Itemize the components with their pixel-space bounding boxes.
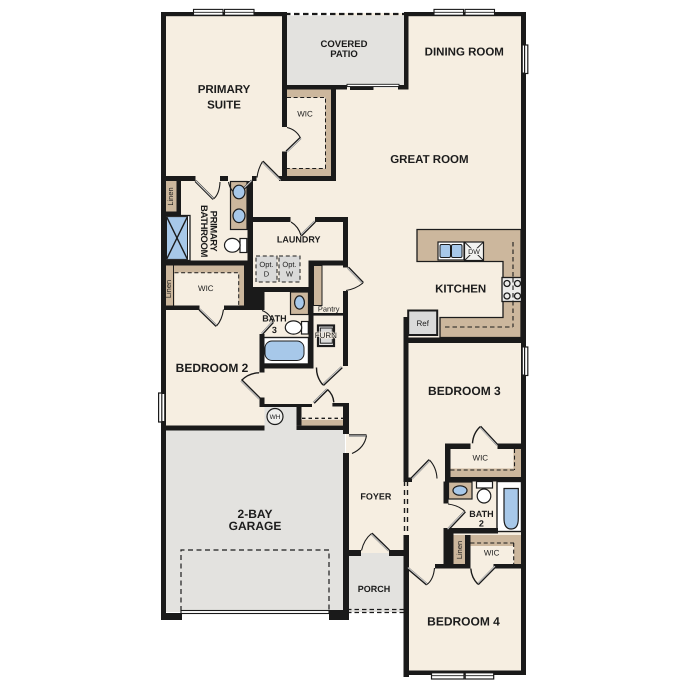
svg-text:SUITE: SUITE bbox=[207, 99, 241, 111]
svg-text:PRIMARY: PRIMARY bbox=[198, 84, 251, 96]
svg-text:KITCHEN: KITCHEN bbox=[435, 284, 486, 296]
svg-text:Ref: Ref bbox=[416, 319, 429, 328]
svg-text:GARAGE: GARAGE bbox=[229, 519, 282, 533]
svg-text:WIC: WIC bbox=[484, 549, 500, 558]
svg-text:Opt.: Opt. bbox=[259, 260, 273, 269]
svg-text:BATH: BATH bbox=[262, 314, 286, 324]
svg-text:BATHROOM: BATHROOM bbox=[198, 205, 209, 258]
svg-text:DINING ROOM: DINING ROOM bbox=[425, 46, 504, 58]
svg-text:DW: DW bbox=[468, 249, 480, 256]
svg-text:PORCH: PORCH bbox=[358, 584, 391, 594]
svg-text:BEDROOM 4: BEDROOM 4 bbox=[427, 614, 500, 628]
svg-text:Opt.: Opt. bbox=[282, 260, 296, 269]
svg-text:2: 2 bbox=[479, 519, 484, 529]
svg-text:PATIO: PATIO bbox=[330, 49, 358, 60]
svg-text:Linen: Linen bbox=[166, 187, 175, 205]
svg-text:WIC: WIC bbox=[198, 284, 214, 293]
svg-text:BATH: BATH bbox=[469, 509, 493, 519]
svg-text:Linen: Linen bbox=[164, 280, 173, 298]
svg-text:D: D bbox=[264, 270, 270, 279]
svg-text:WIC: WIC bbox=[473, 454, 489, 463]
svg-text:W: W bbox=[286, 270, 294, 279]
svg-text:FURN: FURN bbox=[315, 331, 337, 340]
svg-text:3: 3 bbox=[272, 325, 277, 335]
svg-text:LAUNDRY: LAUNDRY bbox=[277, 235, 321, 245]
svg-text:GREAT ROOM: GREAT ROOM bbox=[390, 154, 468, 166]
svg-text:Pantry: Pantry bbox=[318, 305, 340, 314]
svg-text:FOYER: FOYER bbox=[360, 492, 392, 502]
svg-text:Linen: Linen bbox=[455, 541, 464, 559]
svg-text:BEDROOM 3: BEDROOM 3 bbox=[428, 384, 501, 398]
svg-text:BEDROOM 2: BEDROOM 2 bbox=[176, 361, 249, 375]
svg-text:WH: WH bbox=[270, 414, 281, 421]
svg-text:WIC: WIC bbox=[297, 109, 313, 118]
